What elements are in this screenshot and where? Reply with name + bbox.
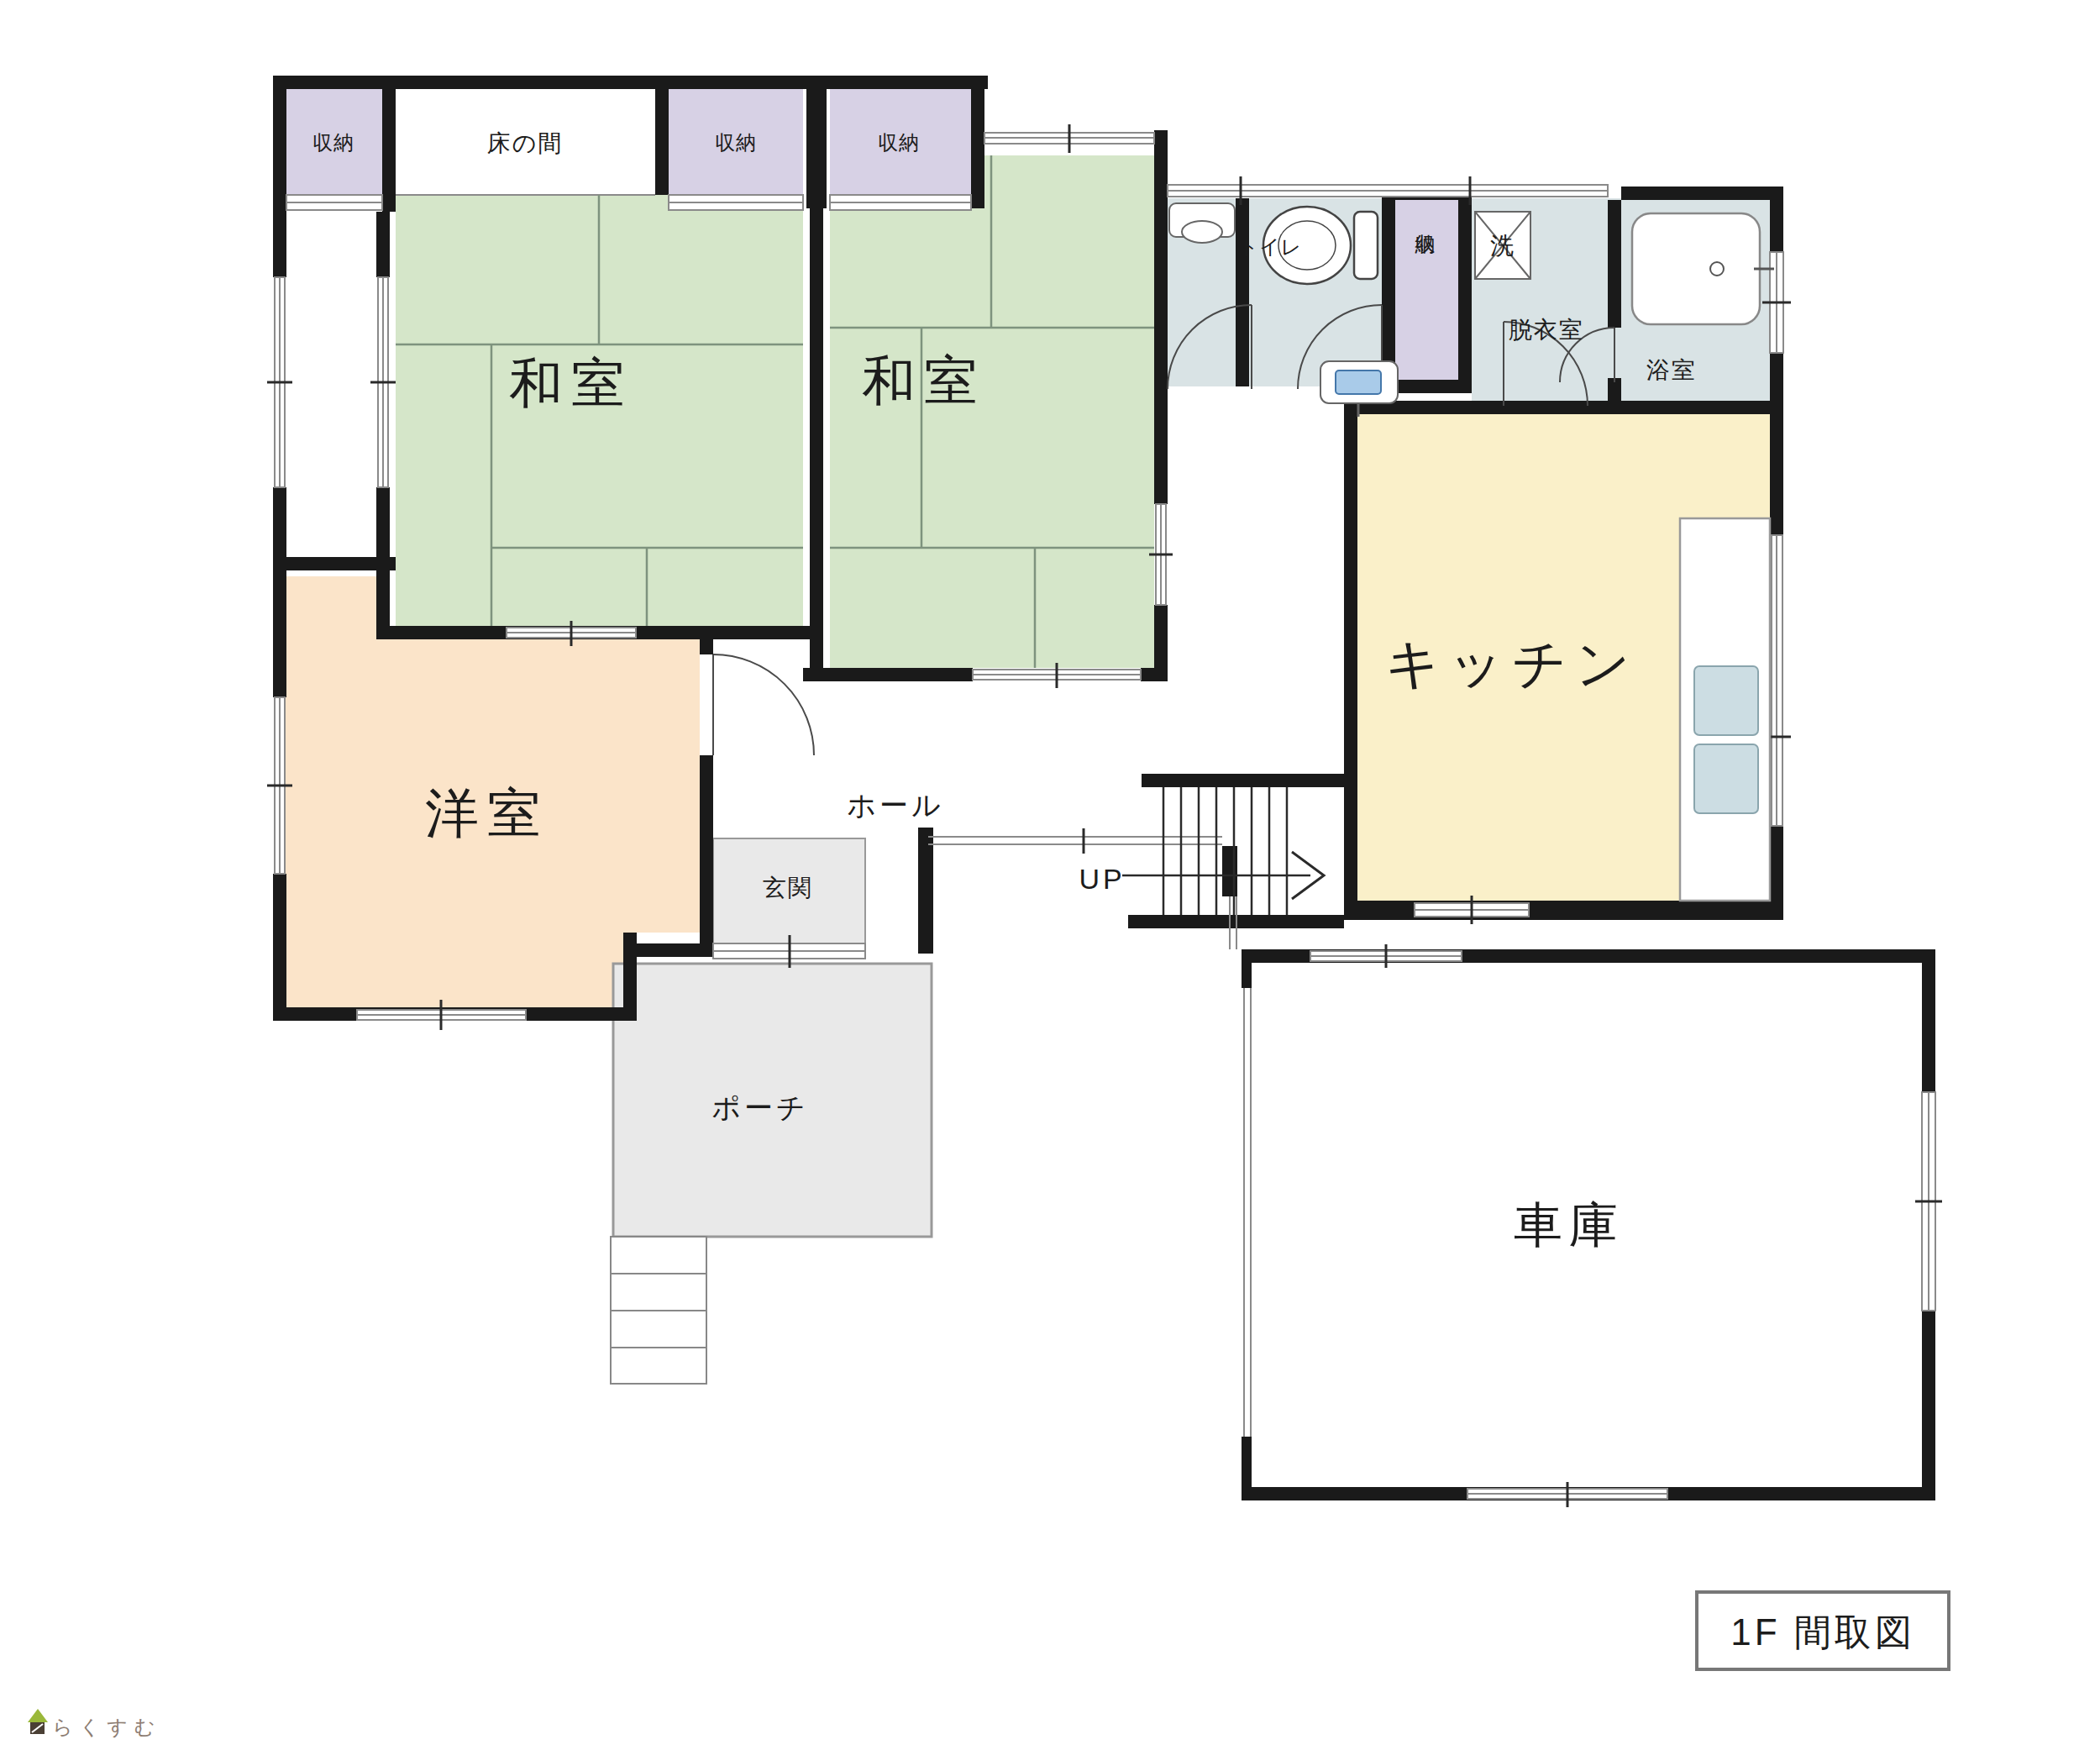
wall (1770, 353, 1783, 406)
closet-door-symbol (830, 195, 971, 210)
wall (1770, 187, 1783, 252)
wall (273, 76, 286, 277)
wall (700, 626, 713, 654)
wall (803, 668, 973, 681)
wall (376, 487, 390, 639)
washitsu-label: 和室 (509, 353, 633, 413)
plan-title: 1F 間取図 (1730, 1611, 1915, 1653)
dressing-label: 脱衣室 (1509, 317, 1584, 343)
washitsu-label: 和室 (862, 350, 986, 411)
porch-label: ポーチ (711, 1091, 809, 1123)
wall (382, 76, 396, 212)
up-label: UP (1079, 863, 1125, 895)
wall (1344, 901, 1783, 920)
wall (655, 76, 669, 195)
wall (1142, 774, 1344, 787)
sink-icon (1694, 666, 1758, 735)
toilet-label: トイレ (1238, 235, 1303, 258)
door-youshitsu (713, 654, 814, 755)
wall (273, 76, 988, 89)
wall (1242, 949, 1252, 988)
youshitsu-label: 洋室 (425, 783, 549, 843)
kitchen-label: キッチン (1385, 633, 1639, 694)
bathroom-label: 浴室 (1646, 357, 1697, 383)
hall-label: ホール (847, 789, 944, 821)
wall (1621, 187, 1783, 200)
house-logo-icon (28, 1709, 48, 1734)
wall (1236, 198, 1249, 386)
wall (971, 76, 984, 208)
garage-label: 車庫 (1514, 1197, 1625, 1252)
wall (1608, 200, 1621, 328)
boundary-line (928, 837, 1222, 844)
floorplan-page: 収納 床の間 収納 収納 和室 和室 洋室 キッチン ホール 玄関 ポーチ 車庫… (0, 0, 2100, 1750)
wall (1344, 414, 1357, 920)
wall (273, 570, 286, 697)
wall (700, 755, 713, 957)
corner-sink-icon (1169, 203, 1235, 243)
closet-door-symbol (286, 195, 382, 210)
wall (810, 208, 823, 681)
genkan-label: 玄関 (763, 875, 813, 901)
wall (918, 828, 933, 954)
wall (1222, 846, 1237, 896)
wall (1154, 130, 1168, 198)
porch-steps (611, 1237, 706, 1384)
wall (273, 874, 286, 1021)
title-box: 1F 間取図 (1697, 1592, 1949, 1669)
wall (806, 76, 827, 208)
room-closet-4 (1395, 200, 1458, 380)
laundry-label: 洗 (1490, 233, 1515, 259)
watermark-text: らくすむ (52, 1716, 161, 1738)
window-symbol (1168, 185, 1608, 197)
wall (1242, 1437, 1252, 1487)
closet-door-symbol (669, 195, 803, 210)
wall (376, 212, 390, 277)
wall (1344, 401, 1783, 414)
window-symbol (1772, 535, 1782, 826)
closet-label: 収納 (715, 131, 757, 154)
wall (623, 943, 713, 957)
wall (1458, 187, 1472, 393)
kitchen-counter (1680, 518, 1770, 901)
wall (1154, 198, 1168, 504)
closet-label: 収納 (878, 131, 920, 154)
stove-icon (1694, 744, 1758, 813)
wall (1141, 668, 1168, 681)
watermark: らくすむ (28, 1709, 161, 1738)
closet-label: 収納 (312, 131, 354, 154)
bathtub-icon (1632, 213, 1774, 324)
boundary-line (1244, 988, 1251, 1437)
tokonoma-label: 床の間 (487, 130, 564, 156)
wall (1770, 414, 1783, 535)
